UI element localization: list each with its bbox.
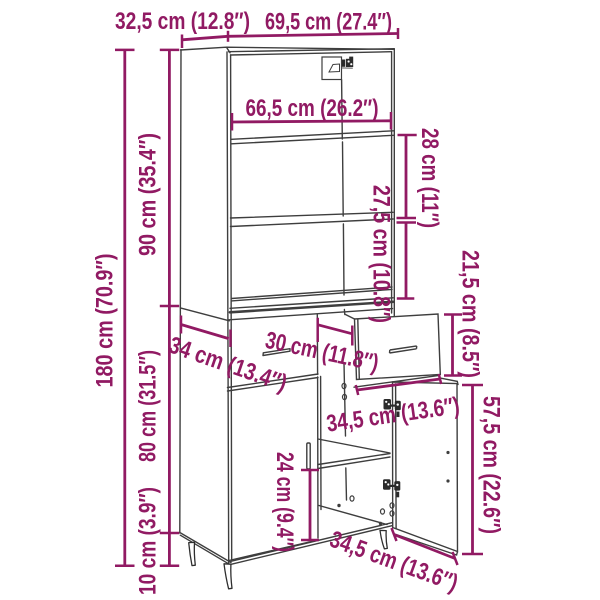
svg-text:27,5 cm (10.8″): 27,5 cm (10.8″) <box>368 185 395 323</box>
svg-text:10 cm (3.9″): 10 cm (3.9″) <box>134 487 161 595</box>
svg-text:28 cm (11″): 28 cm (11″) <box>416 128 443 228</box>
svg-text:180 cm (70.9″): 180 cm (70.9″) <box>92 254 119 388</box>
svg-text:90 cm (35.4″): 90 cm (35.4″) <box>134 133 161 256</box>
svg-text:57,5 cm (22.6″): 57,5 cm (22.6″) <box>478 396 505 534</box>
svg-text:21,5 cm (8.5″): 21,5 cm (8.5″) <box>457 250 484 378</box>
svg-text:66,5 cm (26.2″): 66,5 cm (26.2″) <box>246 95 379 122</box>
svg-text:24 cm (9.4″): 24 cm (9.4″) <box>271 452 298 552</box>
svg-text:80 cm (31.5″): 80 cm (31.5″) <box>134 350 161 462</box>
svg-text:32,5 cm (12.8″): 32,5 cm (12.8″) <box>115 8 250 35</box>
svg-text:69,5 cm (27.4″): 69,5 cm (27.4″) <box>265 9 392 36</box>
